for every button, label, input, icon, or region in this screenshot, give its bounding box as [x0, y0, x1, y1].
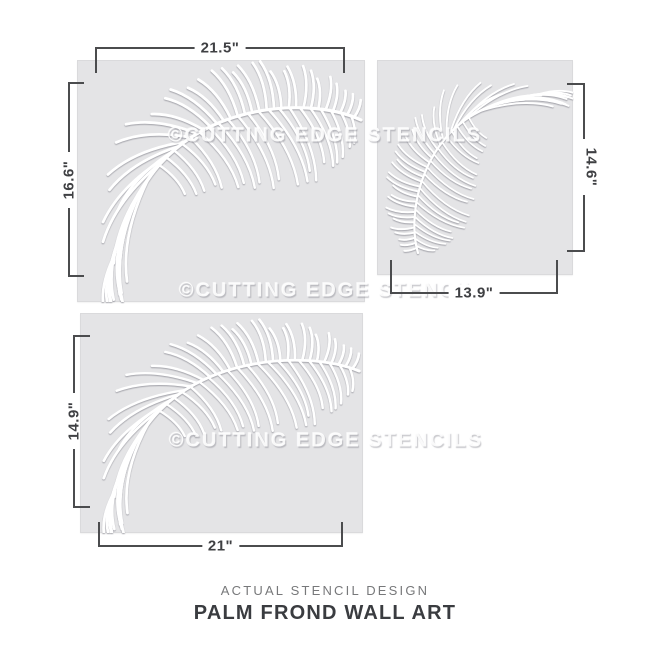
dimension-tick	[98, 522, 100, 547]
dimension-tick	[73, 335, 90, 337]
caption: ACTUAL STENCIL DESIGN PALM FROND WALL AR…	[0, 583, 650, 625]
page-title: PALM FROND WALL ART	[0, 602, 650, 625]
dimension-line	[583, 83, 585, 139]
dimension-tick	[341, 522, 343, 547]
dimension-width-small-stencil: 13.9"	[390, 260, 558, 294]
dimension-tick	[68, 82, 84, 84]
dimension-line	[68, 208, 70, 277]
dimension-label: 21"	[202, 538, 239, 555]
palm-frond-graphic	[80, 313, 363, 533]
dimension-label: 14.9"	[66, 402, 83, 441]
dimension-line	[583, 195, 585, 252]
dimension-tick	[567, 83, 585, 85]
dimension-tick	[68, 275, 84, 277]
stencil-sheet-large	[77, 60, 365, 302]
dimension-label: 21.5"	[195, 40, 246, 57]
dimension-line	[73, 335, 75, 393]
dimension-label: 13.9"	[449, 285, 500, 302]
palm-frond-graphic	[77, 60, 365, 302]
dimension-tick	[343, 47, 345, 73]
stencil-sheet-small	[377, 60, 573, 275]
dimension-tick	[390, 260, 392, 294]
dimension-label: 14.6"	[583, 148, 600, 187]
stencil-product-image: ©CUTTING EDGE STENCILS ©CUTTING EDGE STE…	[0, 0, 650, 650]
copyright-watermark: ©CUTTING EDGE STENCILS	[169, 430, 483, 453]
copyright-watermark: ©CUTTING EDGE STENCILS	[168, 125, 482, 148]
dimension-line	[73, 449, 75, 508]
dimension-tick	[567, 250, 585, 252]
dimension-tick	[95, 47, 97, 73]
dimension-label: 16.6"	[61, 161, 78, 200]
stencil-sheet-wide	[80, 313, 363, 533]
dimension-width-large-stencil: 21.5"	[95, 47, 345, 73]
dimension-tick	[73, 506, 90, 508]
dimension-height-large-stencil: 16.6"	[68, 82, 84, 277]
dimension-width-wide-stencil: 21"	[98, 522, 343, 547]
dimension-tick	[556, 260, 558, 294]
dimension-line	[68, 82, 70, 152]
dimension-height-wide-stencil: 14.9"	[73, 335, 90, 508]
dimension-height-small-stencil: 14.6"	[567, 83, 585, 252]
caption-subtitle: ACTUAL STENCIL DESIGN	[0, 583, 650, 598]
palm-frond-graphic	[377, 60, 573, 275]
